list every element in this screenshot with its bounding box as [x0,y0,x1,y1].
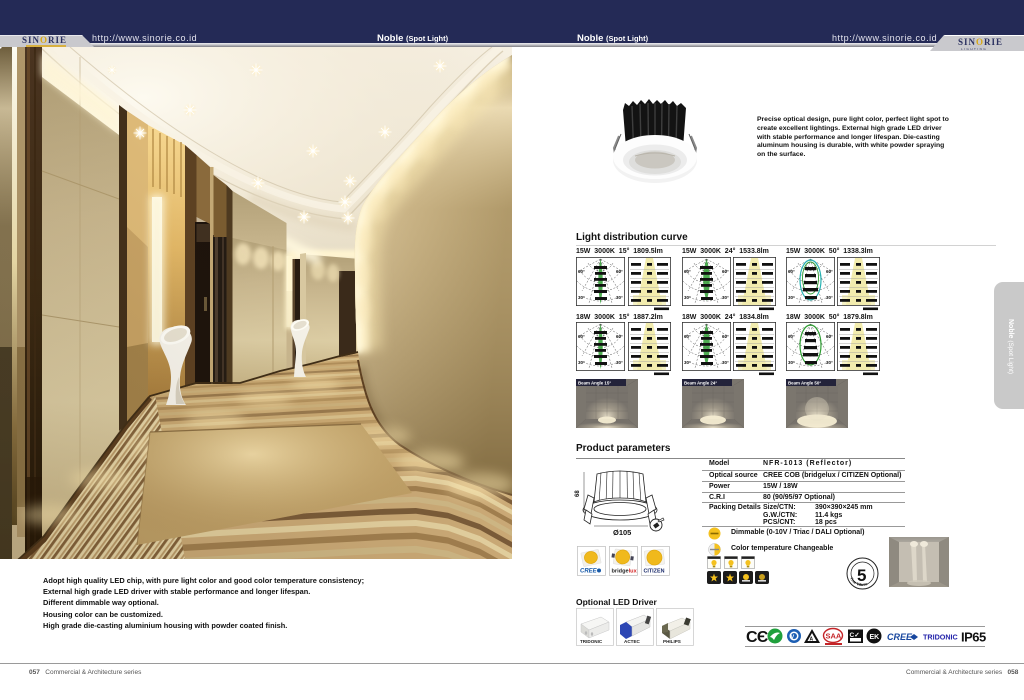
svg-text:ACTEC: ACTEC [624,639,641,644]
svg-text:IP65: IP65 [961,630,986,645]
svg-text:A: A [810,637,814,643]
svg-text:60°: 60° [722,334,729,339]
svg-text:60°: 60° [722,269,729,274]
svg-text:SAA: SAA [826,632,842,641]
svg-text:C✓: C✓ [850,632,860,639]
svg-text:CREE: CREE [887,632,913,642]
svg-text:30°: 30° [722,295,729,300]
svg-text:EK: EK [870,634,880,641]
svg-text:60°: 60° [578,334,585,339]
svg-text:30°: 30° [826,295,833,300]
svg-text:30°: 30° [616,295,623,300]
svg-text:60°: 60° [684,334,691,339]
svg-text:60°: 60° [616,334,623,339]
svg-text:68: 68 [575,490,581,497]
svg-text:C Є: C Є [746,629,768,646]
svg-text:Beam Angle 50°: Beam Angle 50° [788,380,821,385]
svg-text:Beam Angle 24°: Beam Angle 24° [684,380,717,385]
svg-text:V: V [791,635,795,641]
svg-text:60°: 60° [826,269,833,274]
svg-text:Ø105: Ø105 [613,528,631,537]
svg-text:30°: 30° [616,360,623,365]
svg-text:TRIDONIC: TRIDONIC [580,639,603,644]
svg-text:60°: 60° [788,334,795,339]
svg-text:PHILIPS: PHILIPS [663,639,681,644]
svg-text:60°: 60° [684,269,691,274]
svg-text:60°: 60° [788,269,795,274]
svg-text:30°: 30° [578,295,585,300]
svg-text:TRIDONIC: TRIDONIC [923,633,958,642]
svg-text:30°: 30° [684,360,691,365]
svg-text:30°: 30° [826,360,833,365]
svg-text:60°: 60° [578,269,585,274]
svg-text:30°: 30° [788,360,795,365]
svg-text:CITIZEN: CITIZEN [644,569,665,575]
svg-text:60°: 60° [826,334,833,339]
svg-text:30°: 30° [684,295,691,300]
svg-text:60°: 60° [616,269,623,274]
svg-text:30°: 30° [788,295,795,300]
svg-text:30°: 30° [578,360,585,365]
svg-text:Beam Angle 15°: Beam Angle 15° [578,380,611,385]
svg-text:bridgelux: bridgelux [612,569,638,575]
svg-text:CREE: CREE [580,569,598,575]
svg-text:30°: 30° [722,360,729,365]
